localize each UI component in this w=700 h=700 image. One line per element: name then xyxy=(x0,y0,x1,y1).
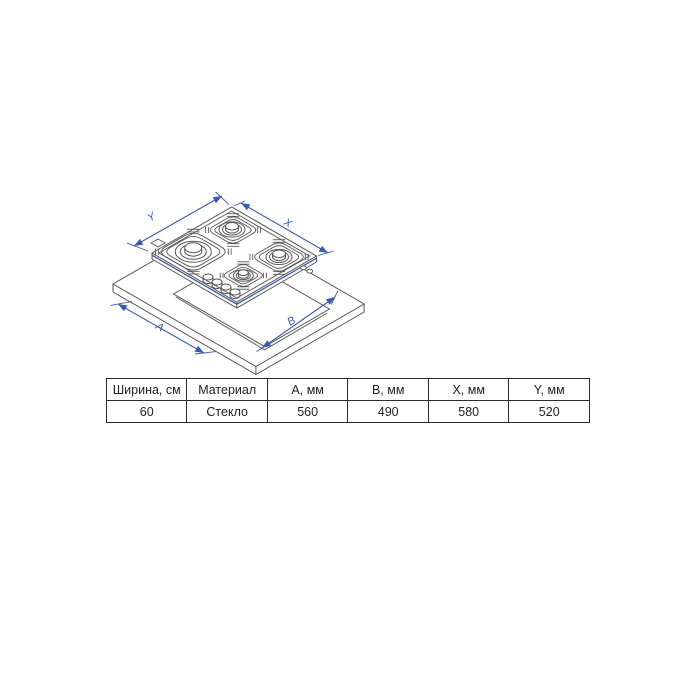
burner-front-small xyxy=(233,270,253,282)
table-header-cell: X, мм xyxy=(428,379,509,401)
table-header-row: Ширина, см Материал A, мм B, мм X, мм Y,… xyxy=(107,379,590,401)
burner-right xyxy=(266,249,292,264)
table-header-cell: A, мм xyxy=(267,379,348,401)
table-value-cell: 560 xyxy=(267,401,348,423)
table-value-cell: 60 xyxy=(107,401,187,423)
page: A B xyxy=(0,0,700,700)
dimension-y-label: Y xyxy=(145,210,158,224)
burner-back xyxy=(219,222,245,237)
spec-table: Ширина, см Материал A, мм B, мм X, мм Y,… xyxy=(106,378,590,423)
burner-large-left xyxy=(175,241,211,262)
dimension-a-label: A xyxy=(152,320,165,335)
table-value-row: 60 Стекло 560 490 580 520 xyxy=(107,401,590,423)
igniter-detail xyxy=(301,266,313,273)
table-value-cell: 580 xyxy=(428,401,509,423)
table-header-cell: Ширина, см xyxy=(107,379,187,401)
table-value-cell: 490 xyxy=(348,401,429,423)
dimension-x-label: X xyxy=(280,216,294,231)
dimension-b-label: B xyxy=(285,314,297,328)
corner-plate xyxy=(151,239,165,247)
table-header-cell: B, мм xyxy=(348,379,429,401)
table-value-cell: Стекло xyxy=(187,401,267,423)
table-value-cell: 520 xyxy=(509,401,590,423)
table-header-cell: Материал xyxy=(187,379,267,401)
table-header-cell: Y, мм xyxy=(509,379,590,401)
